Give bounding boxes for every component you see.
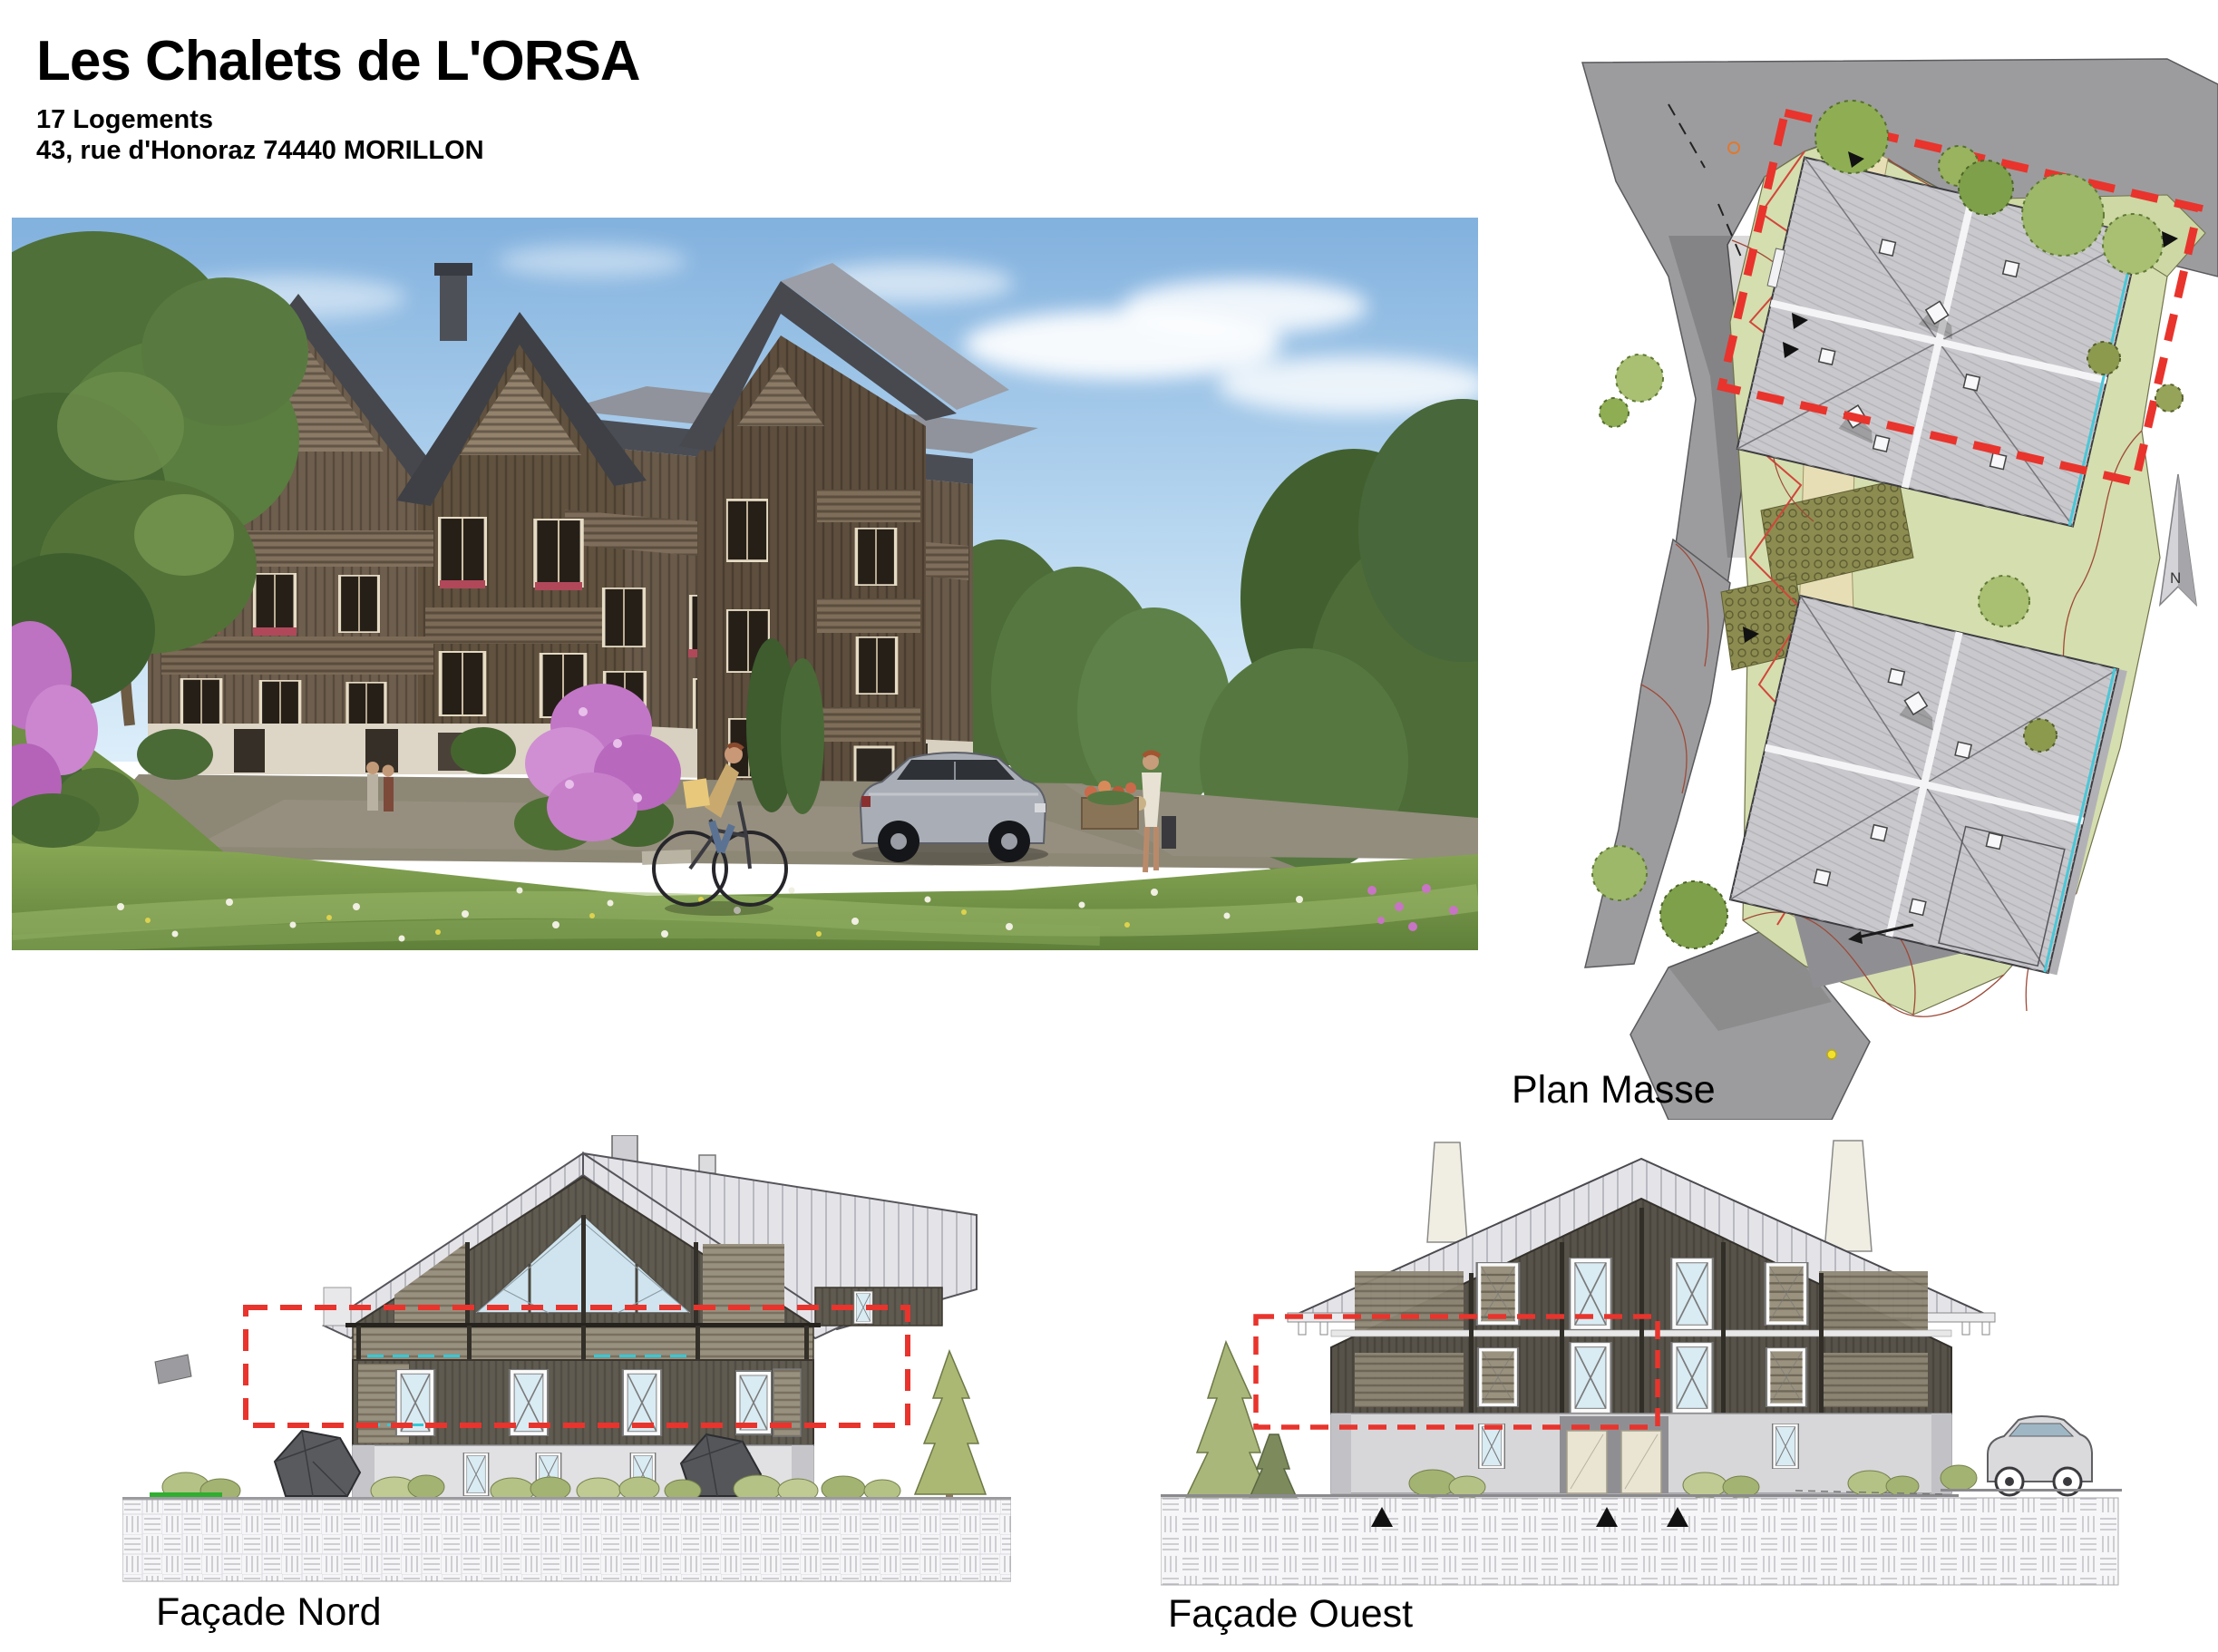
title-block: Les Chalets de L'ORSA 17 Logements 43, r… xyxy=(36,33,640,167)
facade-nord-drawing xyxy=(122,1135,1011,1585)
exterior-rendering xyxy=(12,218,1478,950)
facade-nord-label: Façade Nord xyxy=(156,1590,382,1635)
page-title: Les Chalets de L'ORSA xyxy=(36,33,640,90)
facade-nord-retaining-wall xyxy=(122,1500,1011,1581)
project-units: 17 Logements xyxy=(36,104,640,135)
plan-masse-label: Plan Masse xyxy=(1512,1068,1716,1113)
facade-ouest-label: Façade Ouest xyxy=(1168,1592,1413,1637)
flower-planter xyxy=(1082,781,1138,829)
north-arrow-icon: N xyxy=(2160,474,2196,605)
facade-ouest-retaining-wall xyxy=(1161,1498,2118,1585)
parked-car xyxy=(1988,1416,2092,1495)
site-plan: N xyxy=(1532,50,2218,1120)
north-arrow-letter: N xyxy=(2170,569,2181,587)
project-address: 43, rue d'Honoraz 74440 MORILLON xyxy=(36,135,640,166)
facade-ouest-drawing xyxy=(1161,1135,2131,1589)
